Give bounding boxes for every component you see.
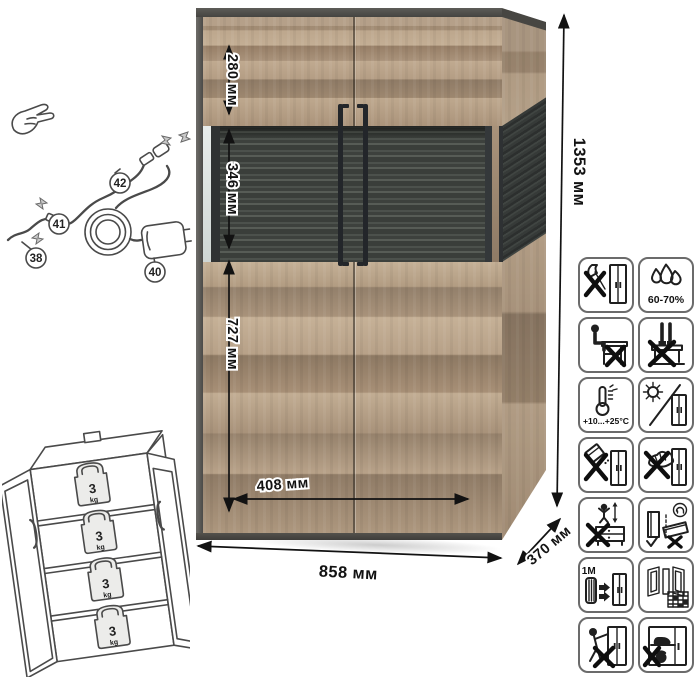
left-carcass-edge [196, 17, 203, 540]
bottom-panel-edge [196, 533, 502, 540]
no-impact-tools-icon [578, 257, 634, 313]
no-tipping-pulling-icon [578, 617, 634, 673]
shelf-load-diagram: 3 kg 3 kg 3 kg 3 kg [2, 415, 190, 677]
avoid-direct-sunlight-icon [638, 377, 694, 433]
dim-overall-height: 1353 мм [570, 138, 588, 207]
interior-mirror-edge [203, 126, 211, 262]
svg-text:+10...+25°C: +10...+25°C [583, 416, 629, 426]
svg-text:kg: kg [110, 639, 119, 647]
svg-text:38: 38 [30, 253, 43, 265]
no-wet-cleaning-icon [638, 437, 694, 493]
svg-text:kg: kg [96, 544, 105, 552]
power-adapter [141, 220, 193, 259]
no-standing-icon [638, 317, 694, 373]
svg-text:42: 42 [114, 178, 127, 190]
svg-text:kg: kg [90, 496, 99, 504]
no-abrasive-cleaners-icon [578, 437, 634, 493]
humidity-range-icon: 60-70% [638, 257, 694, 313]
right-door-handle [363, 104, 368, 266]
led-connection-diagram: 42 41 38 40 [2, 92, 194, 288]
no-children-climbing-icon [578, 497, 634, 553]
top-panel-edge [196, 8, 502, 17]
part-badge-41: 41 [49, 214, 69, 234]
svg-text:≥1M: ≥1M [582, 566, 596, 577]
care-icon-grid: 60-70% [578, 257, 694, 673]
keep-distance-from-heaters-icon: ≥1M [578, 557, 634, 613]
no-sitting-icon [578, 317, 634, 373]
part-badge-40: 40 [145, 258, 165, 282]
svg-text:60-70%: 60-70% [648, 294, 685, 306]
bottom-door-gap [353, 262, 355, 533]
ventilated-room-icon [638, 557, 694, 613]
svg-text:40: 40 [149, 267, 162, 279]
cabinet-bottom-doors [203, 262, 502, 533]
furniture-spec-sheet: 280 мм 346 мм 727 мм 408 мм 858 мм 1353 … [0, 0, 700, 678]
hand-illustration [12, 104, 54, 133]
svg-text:kg: kg [103, 591, 112, 599]
cabinet-glass-display [203, 126, 502, 262]
part-badge-38: 38 [22, 242, 46, 268]
left-door-handle [338, 104, 343, 266]
transport-upright-only-icon [638, 497, 694, 553]
temperature-range-icon: +10...+25°C [578, 377, 634, 433]
cabinet-photo [196, 8, 548, 540]
no-heavy-items-inside-icon [638, 617, 694, 673]
side-glass-window [502, 97, 546, 262]
cabinet-side-panel [502, 8, 546, 540]
top-door-gap [353, 17, 355, 126]
svg-text:41: 41 [53, 219, 66, 231]
dim-overall-width: 858 мм [318, 562, 378, 583]
cabinet-top-doors [203, 17, 502, 126]
cabinet-front [196, 8, 502, 540]
part-badge-42: 42 [110, 169, 130, 193]
